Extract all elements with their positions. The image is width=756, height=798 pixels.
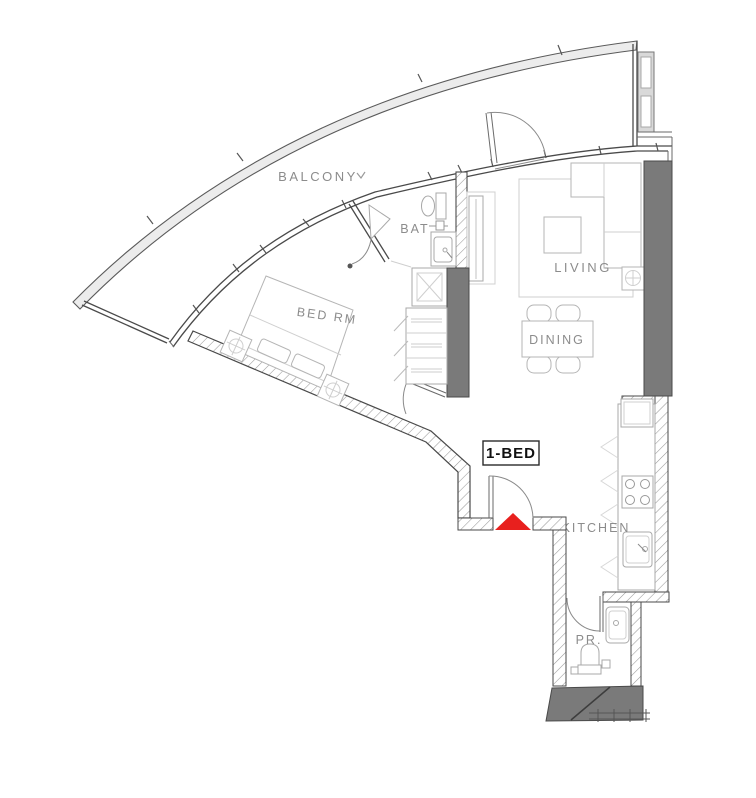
hall-left-wall bbox=[553, 529, 566, 686]
entrance-arrow bbox=[495, 513, 531, 530]
pr-right-wall bbox=[631, 602, 641, 686]
duct-shaft bbox=[467, 192, 495, 284]
unit-label: 1-BED bbox=[486, 445, 536, 462]
bed bbox=[235, 276, 353, 390]
window-wall-cap bbox=[169, 341, 174, 347]
bath-door-swing bbox=[352, 240, 371, 264]
entry-left-strip bbox=[458, 518, 493, 530]
pr-accessory bbox=[602, 660, 610, 668]
kitchen-label: KITCHEN bbox=[562, 521, 631, 535]
dining-chair bbox=[556, 305, 580, 322]
balcony-wall-joint bbox=[418, 74, 422, 82]
floor-plan: BALCONY bbox=[0, 0, 756, 798]
living-label: LIVING bbox=[554, 260, 612, 275]
balcony-label: BALCONY bbox=[278, 169, 358, 184]
vanity-faucet bbox=[443, 248, 447, 252]
dining-label: DINING bbox=[529, 333, 585, 347]
coffee-table bbox=[544, 217, 581, 253]
balcony-door-leaf bbox=[491, 112, 497, 163]
column bbox=[644, 161, 672, 396]
pier-glass-top bbox=[641, 57, 651, 88]
balcony-door-swing bbox=[487, 112, 545, 153]
balcony-door bbox=[486, 112, 545, 169]
fridge bbox=[621, 399, 653, 427]
pr-top-wall bbox=[603, 592, 669, 602]
door-pivot-dot bbox=[348, 264, 353, 269]
entry-right-strip bbox=[533, 517, 566, 530]
pr-toilet-bowl bbox=[581, 644, 599, 667]
bath-pivot-door bbox=[369, 205, 390, 239]
cabinet-door-marks bbox=[601, 436, 618, 578]
pr-sink-drain bbox=[614, 621, 619, 626]
pr-toilet-tank bbox=[578, 665, 601, 674]
column bbox=[447, 268, 469, 397]
entry: 1-BED bbox=[458, 441, 566, 530]
pr-accessory bbox=[571, 667, 578, 674]
balcony-end-wall bbox=[84, 301, 169, 339]
bathroom: BAT bbox=[348, 172, 496, 397]
pr-door-swing bbox=[567, 598, 600, 631]
dining-area: DINING bbox=[522, 305, 593, 373]
balcony-door-leaf bbox=[486, 113, 492, 164]
toilet-tank bbox=[436, 193, 446, 219]
towel-rail-box bbox=[436, 221, 444, 230]
balcony-wall-joint bbox=[147, 216, 153, 224]
bottom-wall bbox=[546, 686, 643, 721]
dining-chair bbox=[527, 356, 551, 373]
balcony-end-wall bbox=[82, 305, 167, 343]
pr-label: PR. bbox=[576, 633, 603, 647]
entry-door-swing bbox=[489, 476, 533, 518]
bath-sill bbox=[391, 261, 411, 267]
balcony-label-mark bbox=[357, 172, 365, 178]
floor-plan-page: BALCONY bbox=[0, 0, 756, 798]
balcony-wall-joint bbox=[237, 153, 243, 161]
kitchen-wall-right bbox=[655, 396, 668, 593]
bedroom-door-swing bbox=[403, 380, 408, 414]
bathroom-label: BAT bbox=[400, 222, 429, 236]
toilet-bowl bbox=[422, 196, 435, 216]
dining-chair bbox=[556, 356, 580, 373]
pier-glass-bottom bbox=[641, 96, 651, 127]
dining-chair bbox=[527, 305, 551, 322]
bath-wall bbox=[456, 172, 467, 268]
